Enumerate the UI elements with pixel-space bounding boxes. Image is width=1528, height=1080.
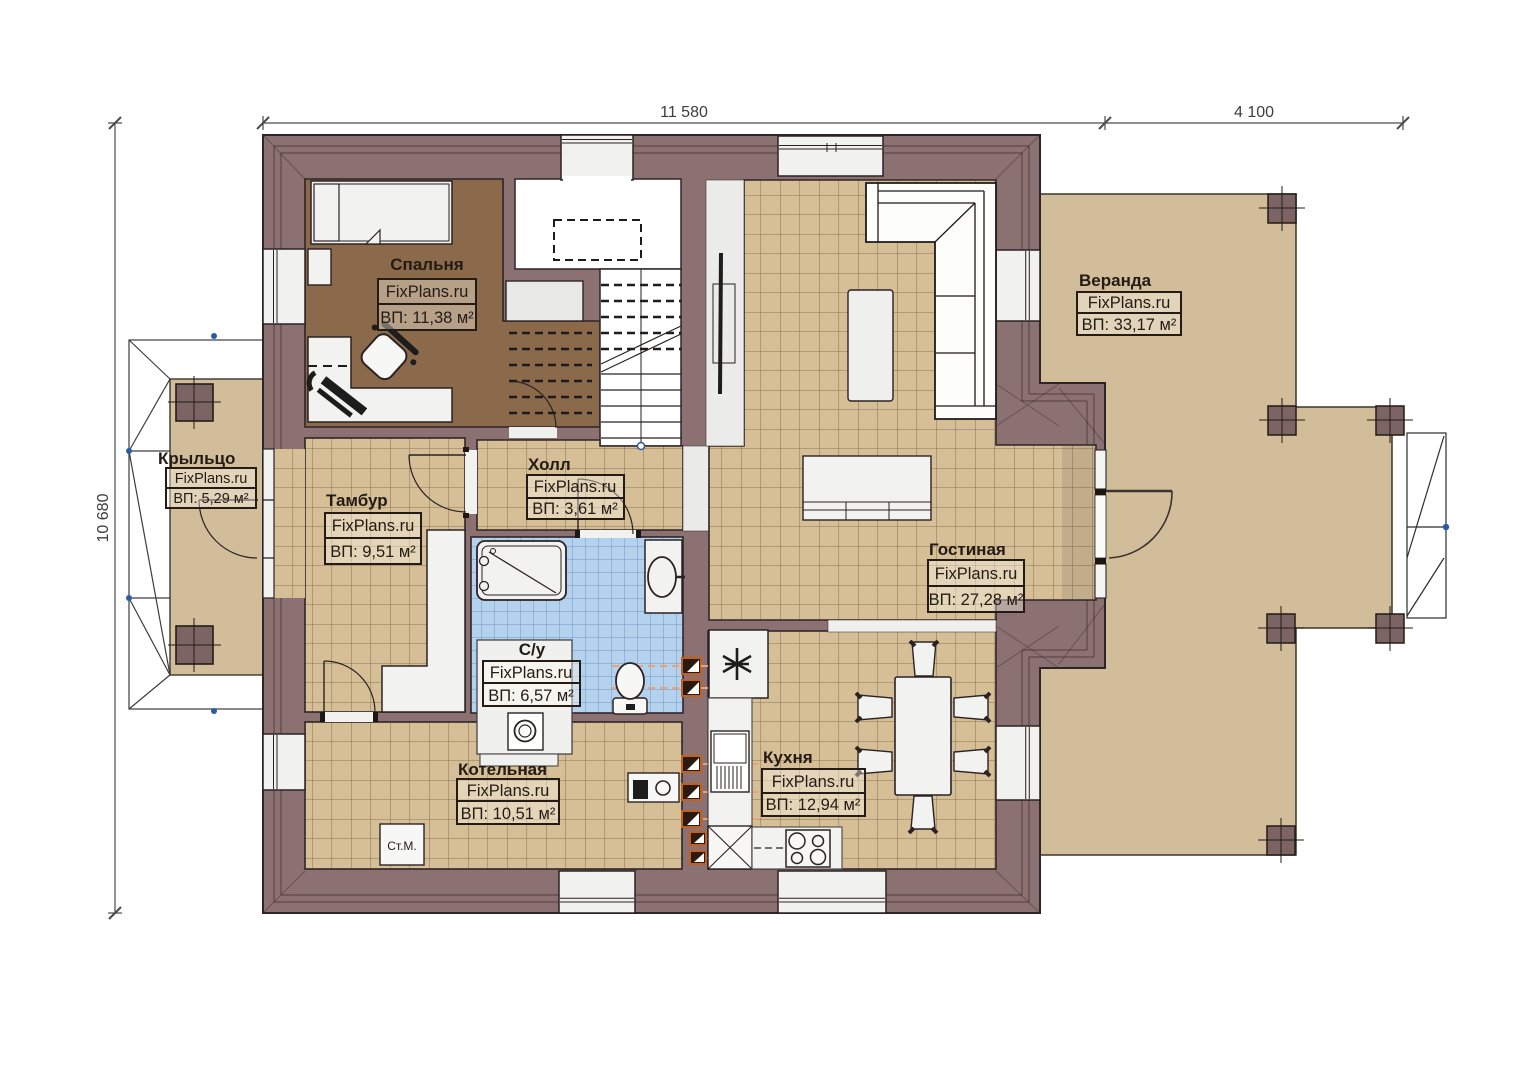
svg-text:Холл: Холл [528,455,571,474]
svg-text:ВП: 3,61 м²: ВП: 3,61 м² [532,500,618,518]
svg-text:FixPlans.ru: FixPlans.ru [1088,294,1171,312]
svg-text:ВП: 5,29 м²: ВП: 5,29 м² [173,491,248,507]
svg-text:FixPlans.ru: FixPlans.ru [467,782,550,800]
svg-text:ВП: 10,51 м²: ВП: 10,51 м² [461,805,556,823]
svg-text:ВП: 12,94 м²: ВП: 12,94 м² [766,796,861,814]
svg-text:С/у: С/у [519,640,546,659]
svg-text:10 680: 10 680 [95,493,112,542]
svg-text:FixPlans.ru: FixPlans.ru [534,478,617,496]
svg-text:Кухня: Кухня [763,748,813,767]
svg-text:FixPlans.ru: FixPlans.ru [772,773,855,791]
svg-text:Тамбур: Тамбур [326,491,388,510]
svg-text:Гостиная: Гостиная [929,540,1006,559]
svg-text:11 580: 11 580 [660,104,708,121]
svg-text:ВП: 27,28 м²: ВП: 27,28 м² [929,591,1024,609]
svg-text:ВП: 9,51 м²: ВП: 9,51 м² [330,543,416,561]
svg-text:4 100: 4 100 [1234,104,1274,121]
svg-text:FixPlans.ru: FixPlans.ru [490,664,573,682]
svg-text:FixPlans.ru: FixPlans.ru [935,565,1018,583]
svg-text:ВП: 6,57 м²: ВП: 6,57 м² [488,687,574,705]
svg-text:Крыльцо: Крыльцо [158,449,235,468]
svg-text:FixPlans.ru: FixPlans.ru [332,517,415,535]
svg-text:FixPlans.ru: FixPlans.ru [175,471,248,487]
svg-text:ВП: 33,17 м²: ВП: 33,17 м² [1082,316,1177,334]
svg-text:Ст.М.: Ст.М. [387,839,417,853]
svg-text:Спальня: Спальня [390,255,463,274]
svg-text:Котельная: Котельная [458,760,547,779]
svg-text:FixPlans.ru: FixPlans.ru [386,283,469,301]
svg-text:ВП: 11,38 м²: ВП: 11,38 м² [380,309,474,327]
svg-text:Веранда: Веранда [1079,271,1152,290]
